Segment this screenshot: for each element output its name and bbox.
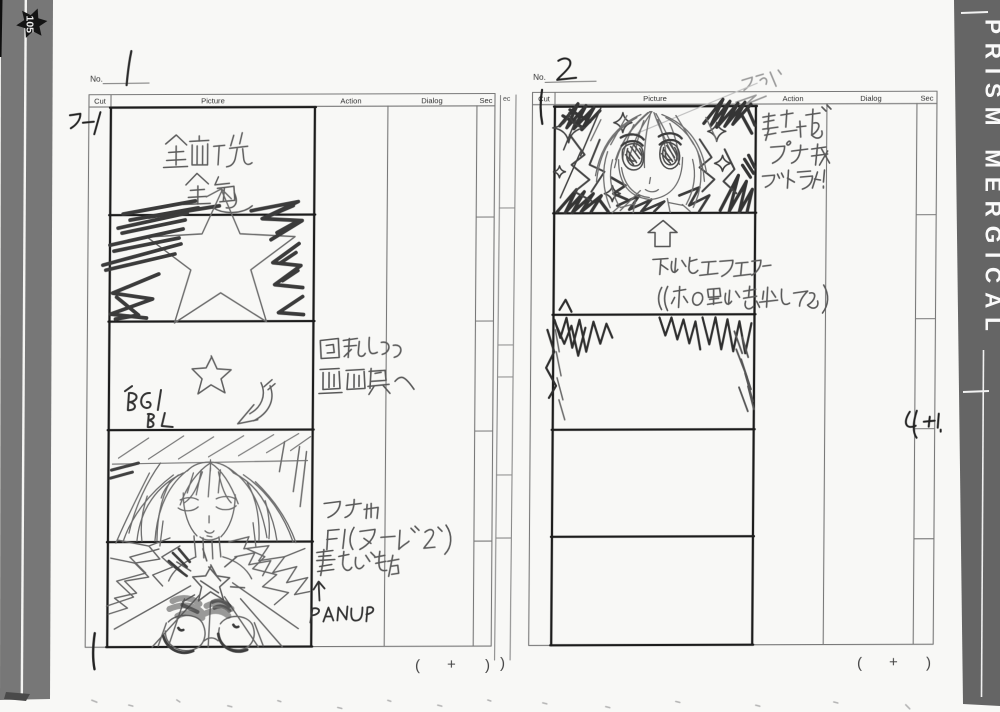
svg-text:): )	[500, 655, 505, 672]
svg-text:Action: Action	[340, 96, 361, 105]
svg-text:): )	[926, 655, 931, 672]
svg-text:+: +	[447, 656, 456, 673]
svg-text:ec: ec	[503, 96, 511, 103]
svg-text:No.: No.	[533, 73, 546, 82]
svg-text:Picture: Picture	[201, 96, 225, 105]
svg-text:Cut: Cut	[94, 97, 107, 106]
svg-text:105: 105	[24, 16, 36, 34]
svg-text:): )	[485, 657, 490, 674]
svg-text:Sec: Sec	[920, 94, 933, 103]
svg-text:Action: Action	[782, 94, 803, 103]
svg-text:Dialog: Dialog	[421, 96, 443, 105]
svg-text:Sec: Sec	[479, 96, 492, 105]
svg-text:No.: No.	[90, 75, 103, 84]
svg-text:+: +	[889, 654, 898, 671]
svg-text:Dialog: Dialog	[860, 94, 882, 103]
svg-text:Picture: Picture	[643, 94, 667, 103]
svg-text:(: (	[857, 655, 862, 672]
svg-text:PRISM MERGICAL: PRISM MERGICAL	[981, 19, 1000, 340]
svg-text:(: (	[415, 657, 420, 674]
